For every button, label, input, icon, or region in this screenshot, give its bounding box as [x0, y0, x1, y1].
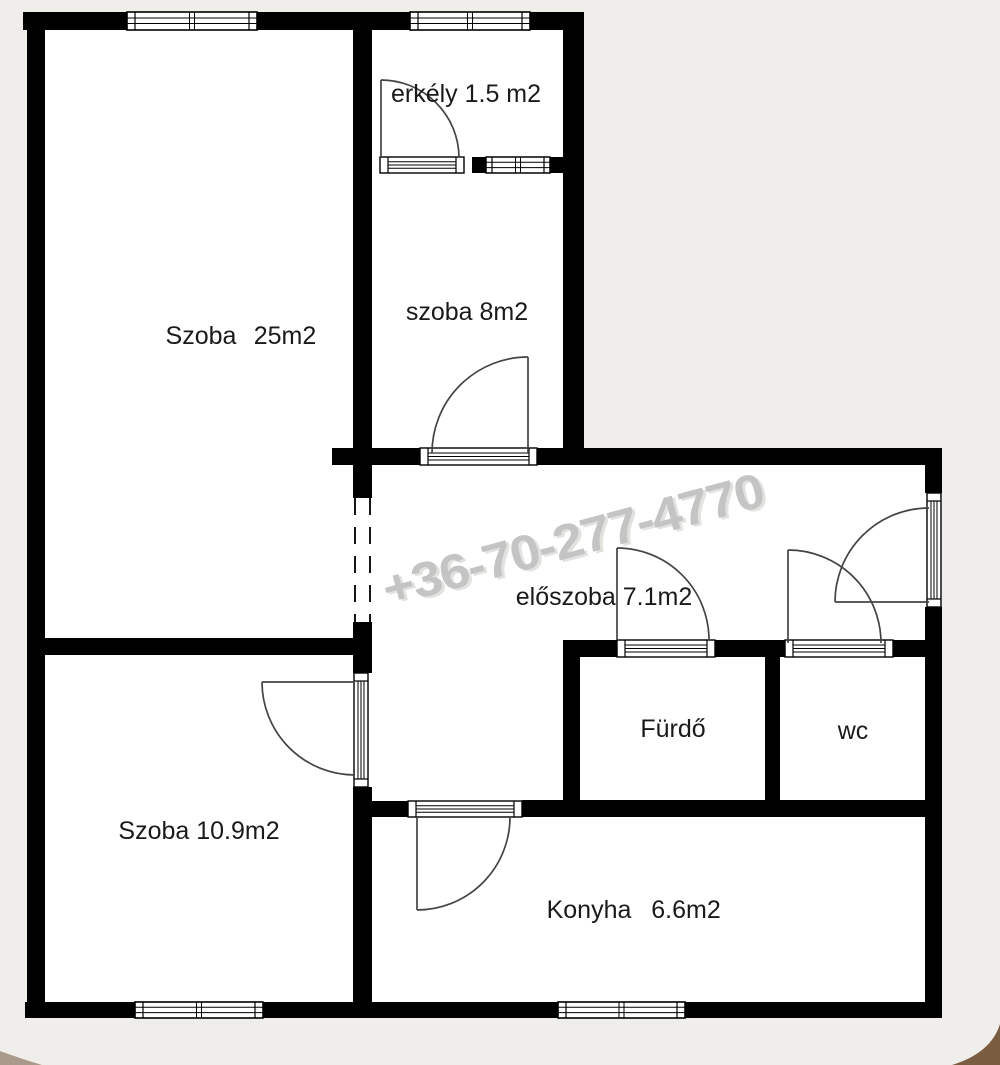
room-label-wc: wc — [837, 717, 869, 745]
room-label-szoba8: szoba 8m2 — [406, 298, 528, 326]
wall — [893, 640, 925, 657]
wall — [353, 622, 372, 673]
wall — [522, 800, 942, 817]
room-label-szoba109: Szoba 10.9m2 — [118, 817, 279, 845]
wall — [263, 1002, 558, 1018]
door-frame — [354, 673, 368, 787]
door-sill — [420, 448, 537, 465]
window-icon — [558, 1002, 685, 1018]
room-label-furdo: Fürdő — [640, 715, 705, 743]
door-sill — [408, 801, 522, 817]
wall — [372, 801, 408, 817]
wall — [40, 638, 353, 655]
room-label-erkely: erkély 1.5 m2 — [391, 80, 541, 108]
wall — [685, 1002, 942, 1018]
door-sill — [785, 640, 893, 657]
window-icon — [410, 12, 530, 30]
room-label-konyha-name: Konyha — [547, 896, 632, 924]
window-icon — [135, 1002, 263, 1018]
wall — [472, 157, 486, 173]
wall — [537, 448, 942, 465]
door-sill — [617, 640, 715, 657]
floor-plan-drawing: erkély 1.5 m2 szoba 8m2 Szoba 25m2 elősz… — [0, 0, 1000, 1065]
entry-door-frame — [927, 493, 941, 607]
floor-plan-image: erkély 1.5 m2 szoba 8m2 Szoba 25m2 elősz… — [0, 0, 1000, 1065]
wall — [563, 640, 580, 817]
room-label-konyha-area: 6.6m2 — [651, 896, 720, 924]
window-icon — [127, 12, 257, 30]
wall — [332, 448, 420, 465]
room-label-szoba25-name: Szoba — [166, 322, 237, 350]
room-label-eloszoba: előszoba 7.1m2 — [516, 583, 693, 611]
wall — [550, 157, 564, 173]
wall — [353, 28, 372, 498]
wall — [563, 12, 584, 465]
wall — [765, 640, 780, 817]
door-sill — [380, 157, 464, 173]
window-icon — [486, 157, 550, 173]
room-label-szoba25-area: 25m2 — [254, 322, 317, 350]
wall — [27, 12, 45, 1018]
wall — [25, 1002, 135, 1018]
wall — [257, 12, 410, 30]
wall — [353, 787, 372, 1018]
